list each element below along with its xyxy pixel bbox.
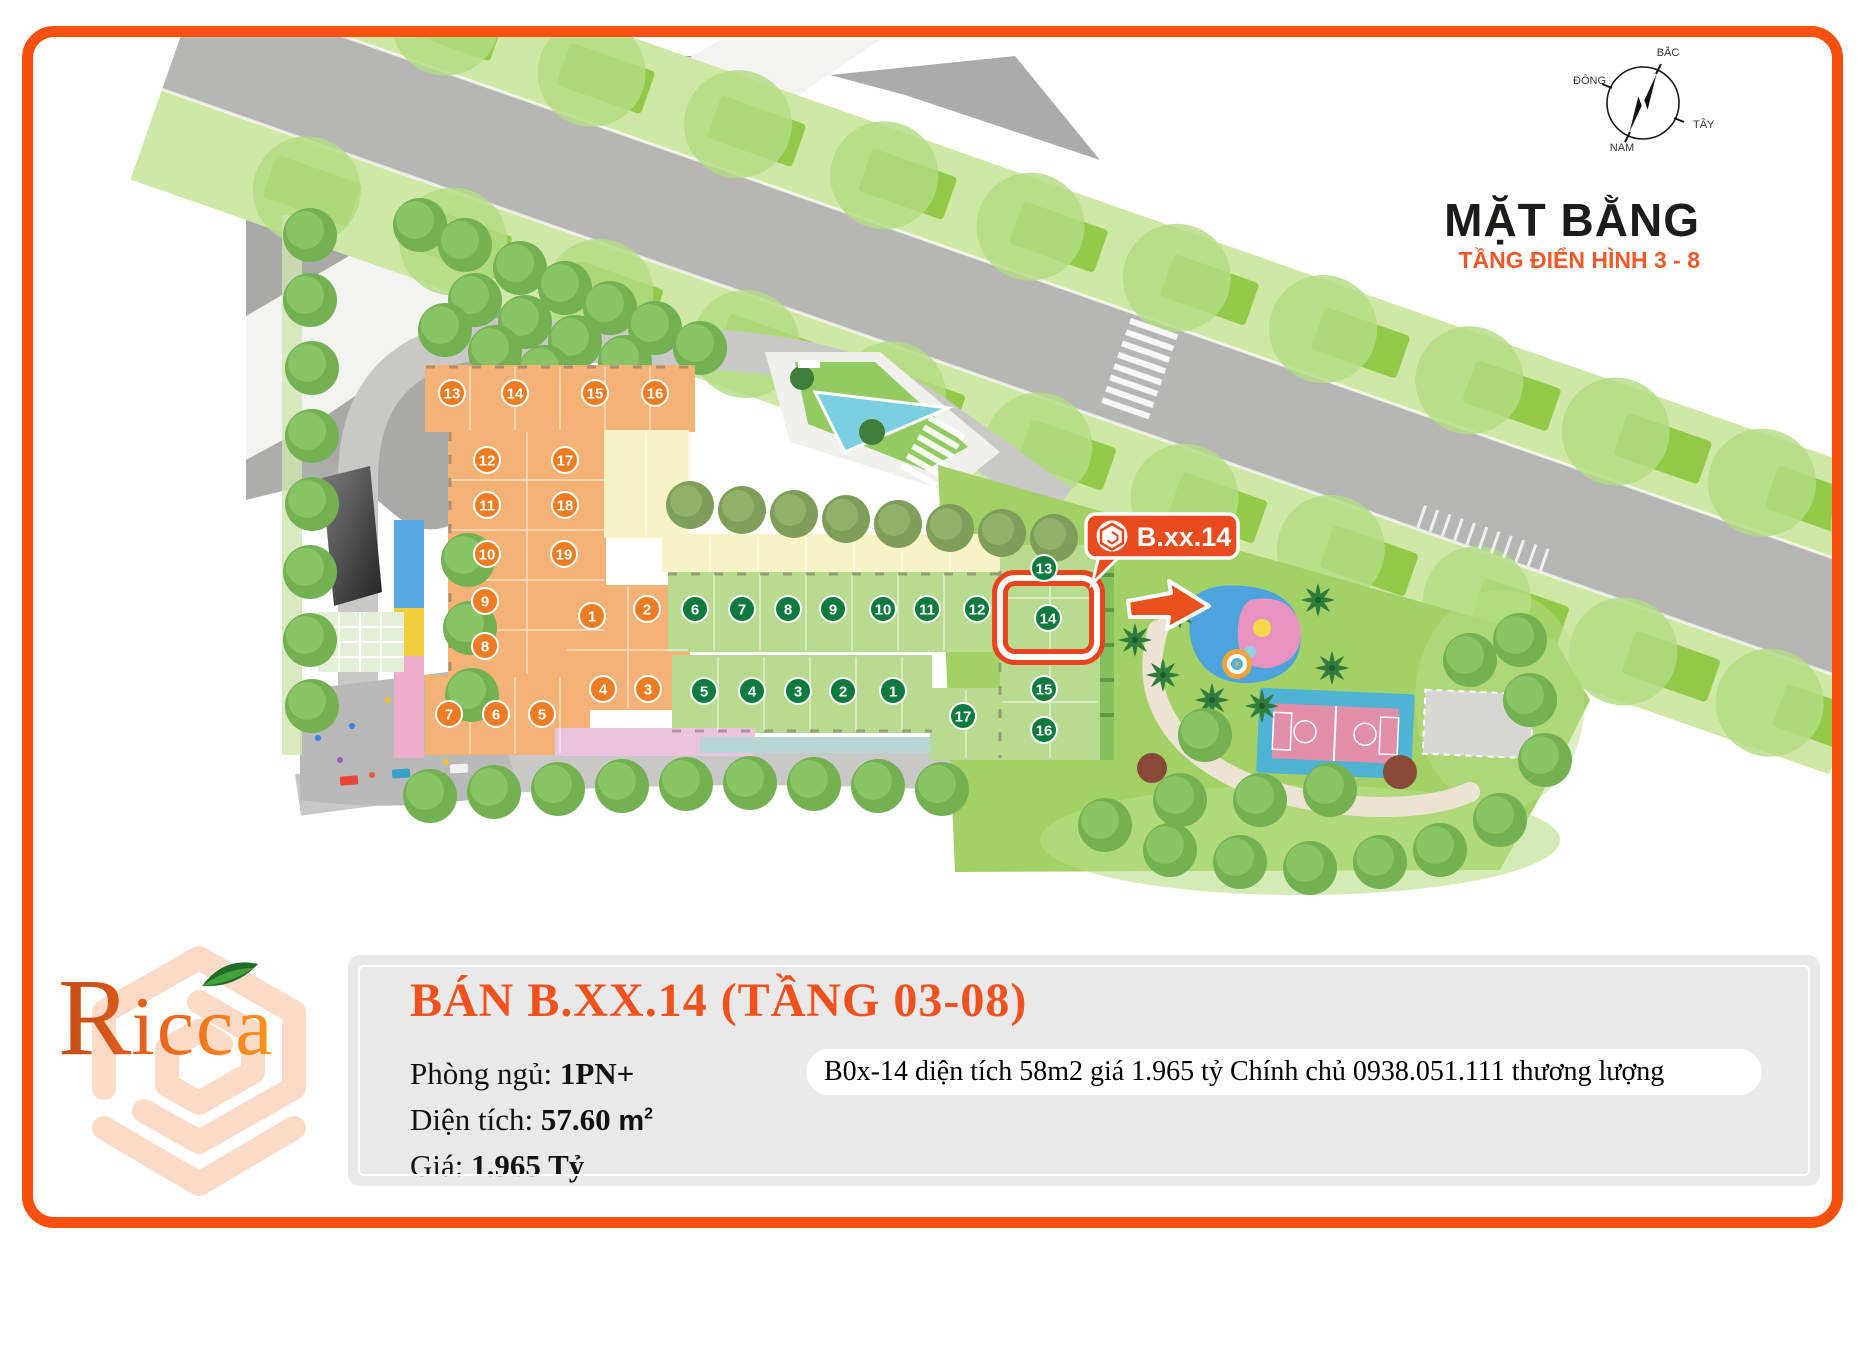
compass-rose: BẮC ĐÔNG TÂY NAM [1573,46,1715,154]
unit-number: 6 [492,707,500,724]
unit-number: 9 [829,602,837,619]
unit-number: 10 [479,547,496,564]
unit-badge: 19 [551,541,577,567]
playground [1189,585,1300,683]
unit-badge: 6 [682,596,708,622]
price-row: Giá: 1.965 Tỷ [410,1143,653,1189]
unit-badge: 15 [1031,676,1057,702]
leaf-icon [196,954,266,994]
area-label: Diện tích: [410,1102,541,1137]
maroon-shrub [1137,753,1167,783]
unit-badge: 17 [950,703,976,729]
unit-badge: 11 [474,492,500,518]
unit-number: 16 [647,386,664,403]
unit-badge: 3 [785,678,811,704]
compass-east: ĐÔNG [1573,74,1606,87]
unit-badge: 3 [635,676,661,702]
unit-badge: 4 [739,678,765,704]
unit-badge: 10 [474,541,500,567]
unit-badge: 17 [552,447,578,473]
unit-badge: 13 [1031,555,1057,581]
listing-note-input[interactable]: B0x-14 diện tích 58m2 giá 1.965 tỷ Chính… [806,1049,1762,1095]
unit-badge: 6 [483,701,509,727]
unit-number: 15 [1036,682,1053,699]
unit-badge: 13 [439,380,465,406]
compass-west: TÂY [1693,118,1715,131]
playground-strip-blue [394,520,424,608]
brand-logo: Ricca [44,928,354,1240]
unit-number: 16 [1036,723,1053,740]
unit-number: 1 [588,609,596,626]
listing-panel: BÁN B.XX.14 (TẦNG 03-08) Phòng ngủ: 1PN+… [348,955,1820,1186]
area-value: 57.60 [541,1102,619,1137]
unit-number: 13 [1036,561,1053,578]
unit-number: 7 [445,707,453,724]
unit-number: 18 [557,498,574,515]
logo-initial: R [58,956,131,1078]
unit-badge: 8 [472,633,498,659]
unit-badge: 16 [642,380,668,406]
price-label: Giá: [410,1148,471,1183]
unit-number: 17 [955,709,972,726]
unit-number: 3 [644,682,652,699]
unit-number: 17 [557,453,574,470]
bedrooms-value: 1PN+ [560,1056,635,1091]
unit-number: 5 [538,707,546,724]
map-title: MẶT BẰNG [1444,194,1700,246]
unit-number: 14 [1040,611,1057,628]
unit-badge: 4 [590,676,616,702]
unit-number: 9 [481,594,489,611]
unit-badge: 15 [582,380,608,406]
unit-badge: 1 [579,603,605,629]
map-subtitle: TẦNG ĐIỂN HÌNH 3 - 8 [1458,246,1700,273]
unit-number: 6 [691,602,699,619]
site-plan-art: B.xx.14 1 2 3 4 5 6 7 8 9 10 11 12 13 14… [129,0,1864,895]
unit-badge: 10 [870,596,896,622]
unit-number: 2 [839,684,847,701]
teal-strip [700,737,930,753]
unit-badge-selected: 14 [1035,605,1061,631]
unit-number: 7 [738,602,746,619]
unit-badge: 1 [880,678,906,704]
unit-number: 15 [587,386,604,403]
listing-title: BÁN B.XX.14 (TẦNG 03-08) [410,973,1027,1028]
unit-badge: 12 [474,447,500,473]
unit-number: 12 [969,602,986,619]
unit-badge: 7 [729,596,755,622]
unit-number: 1 [889,684,897,701]
area-row: Diện tích: 57.60 m2 [410,1097,653,1143]
unit-number: 5 [700,684,708,701]
tree-row-bottom [403,756,969,823]
unit-badge: 16 [1031,717,1057,743]
unit-badge: 2 [830,678,856,704]
area-unit: m [618,1105,644,1137]
callout-label: B.xx.14 [1137,522,1232,552]
unit-badge: 9 [820,596,846,622]
area-unit-sup: 2 [644,1106,653,1123]
unit-number: 11 [479,498,495,515]
maroon-shrub [1383,755,1417,789]
unit-badge: 2 [634,596,660,622]
unit-badge: 12 [964,596,990,622]
price-value: 1.965 Tỷ [471,1148,584,1183]
page: B.xx.14 1 2 3 4 5 6 7 8 9 10 11 12 13 14… [0,0,1864,1366]
unit-number: 4 [748,684,757,701]
unit-number: 8 [481,639,489,656]
unit-number: 12 [479,453,496,470]
unit-badge: 18 [552,492,578,518]
bedrooms-label: Phòng ngủ: [410,1056,560,1091]
bedrooms-row: Phòng ngủ: 1PN+ [410,1051,653,1097]
compass-north: BẮC [1657,46,1680,59]
unit-number: 14 [507,386,524,403]
unit-number: 10 [875,602,892,619]
unit-number: 8 [784,602,792,619]
listing-specs: Phòng ngủ: 1PN+ Diện tích: 57.60 m2 Giá:… [410,1051,653,1189]
unit-number: 4 [599,682,608,699]
unit-badge: 5 [529,701,555,727]
unit-badge: 9 [472,588,498,614]
unit-number: 19 [556,547,573,564]
unit-number: 11 [919,602,935,619]
unit-number: 13 [444,386,461,403]
unit-badge: 11 [914,596,940,622]
compass-south: NAM [1610,142,1634,154]
unit-number: 3 [794,684,802,701]
unit-number: 2 [643,602,651,619]
unit-badge: 14 [502,380,528,406]
unit-badge: 7 [436,701,462,727]
unit-badge: 5 [691,678,717,704]
unit-badge: 8 [775,596,801,622]
